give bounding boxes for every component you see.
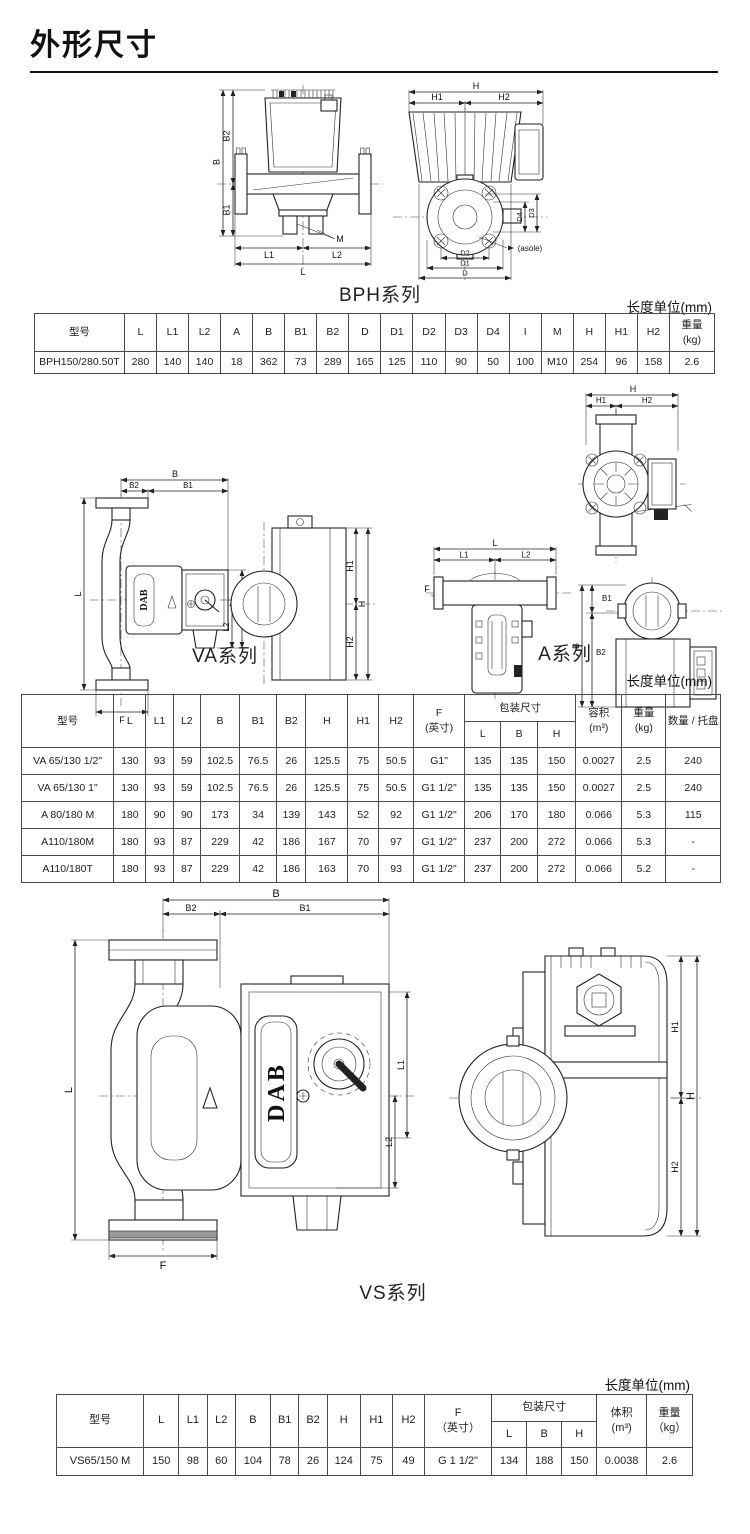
table-cell: 90	[173, 802, 200, 829]
table-cell: 0.0038	[597, 1448, 647, 1476]
table-cell: 93	[379, 856, 414, 883]
vs-drawing: B B2 B1 DAB	[45, 888, 705, 1273]
table-cell: 26	[277, 748, 306, 775]
table-cell: 237	[465, 856, 501, 883]
dim-label-H2: H2	[642, 396, 653, 405]
bph-table: 型号 L L1 L2 A B B1 B2 D D1 D2 D3 D4 I M H	[34, 313, 715, 374]
table-cell: 130	[114, 748, 146, 775]
table-row: BPH150/280.50T28014014018362732891651251…	[35, 352, 715, 374]
table-cell: 73	[285, 352, 317, 374]
table-cell: 34	[240, 802, 277, 829]
column-header: H1	[348, 695, 379, 748]
table-cell: 75	[348, 748, 379, 775]
table-cell: 124	[327, 1448, 360, 1476]
column-header: 重量 (kg)	[622, 695, 666, 748]
table-cell: 180	[537, 802, 575, 829]
table-cell: 229	[200, 829, 239, 856]
table-cell: 42	[240, 829, 277, 856]
table-row: VA 65/130 1"1309359102.576.526125.57550.…	[22, 775, 721, 802]
dim-label-H: H	[685, 1092, 697, 1100]
dim-label-B: B	[272, 888, 279, 900]
column-header: M	[541, 314, 573, 352]
table-cell: 163	[306, 856, 348, 883]
table-cell: 52	[348, 802, 379, 829]
dim-label-D1: D1	[460, 259, 470, 268]
dim-label-B1: B1	[299, 903, 310, 913]
table-cell: 49	[392, 1448, 424, 1476]
model-cell: VA 65/130 1"	[22, 775, 114, 802]
dim-label-H1: H1	[431, 92, 443, 102]
table-cell: G1 1/2"	[414, 829, 465, 856]
table-cell: 92	[379, 802, 414, 829]
table-cell: 140	[189, 352, 221, 374]
column-header: H	[537, 722, 575, 748]
dim-label-H1: H1	[670, 1021, 680, 1033]
column-header: 型号	[57, 1395, 144, 1448]
table-cell: 59	[173, 775, 200, 802]
table-cell: 98	[179, 1448, 207, 1476]
table-cell: 5.2	[622, 856, 666, 883]
dim-label-L: L	[300, 267, 305, 277]
a-caption: A系列	[440, 639, 690, 666]
table-cell: 139	[277, 802, 306, 829]
table-cell: 140	[156, 352, 188, 374]
table-row: A110/180T1809387229421861637093G1 1/2"23…	[22, 856, 721, 883]
dim-label-L: L	[63, 1087, 75, 1093]
table-cell: 26	[277, 775, 306, 802]
column-header: B2	[317, 314, 349, 352]
column-header: H	[573, 314, 605, 352]
table-row: A 80/180 M1809090173341391435292G1 1/2"2…	[22, 802, 721, 829]
dim-label-B: B	[172, 469, 178, 479]
table-cell: 102.5	[200, 775, 239, 802]
table-cell: 2.5	[622, 748, 666, 775]
table-cell: 135	[501, 748, 537, 775]
column-header: L1	[179, 1395, 207, 1448]
table-cell: 0.066	[576, 829, 622, 856]
column-header: B	[200, 695, 239, 748]
table-row: VS65/150 M150986010478261247549G 1 1/2"1…	[57, 1448, 693, 1476]
dim-label-D2: D2	[460, 249, 470, 258]
table-cell: 104	[235, 1448, 270, 1476]
dim-label-B: B	[212, 159, 222, 165]
column-header: 重量 (kg)	[669, 314, 714, 352]
dim-label-L: L	[73, 591, 83, 596]
table-cell: 75	[348, 775, 379, 802]
table-cell: 186	[277, 856, 306, 883]
table-cell: 115	[666, 802, 721, 829]
dim-label-F: F	[160, 1260, 167, 1272]
table-cell: -	[666, 829, 721, 856]
table-cell: 97	[379, 829, 414, 856]
table-cell: 93	[146, 856, 173, 883]
dim-label-D3: D3	[527, 208, 536, 218]
column-header: B1	[240, 695, 277, 748]
column-header: H	[327, 1395, 360, 1448]
table-cell: 50.5	[379, 775, 414, 802]
vs-side-view: H1 H2 H	[449, 948, 701, 1236]
dim-label-F: F	[424, 584, 430, 594]
va-caption: VA系列	[95, 641, 355, 668]
table-cell: 50.5	[379, 748, 414, 775]
table-cell: 18	[221, 352, 253, 374]
column-header: I	[509, 314, 541, 352]
table-cell: -	[666, 856, 721, 883]
dim-label-L1: L1	[396, 1060, 406, 1070]
table-cell: 180	[114, 856, 146, 883]
page-title: 外形尺寸	[30, 20, 158, 64]
table-cell: 158	[637, 352, 669, 374]
table-cell: 206	[465, 802, 501, 829]
dab-logo: DAB	[264, 1062, 290, 1122]
column-header: L2	[173, 695, 200, 748]
dim-label-B2: B2	[129, 481, 139, 490]
vs-caption: VS系列	[243, 1278, 543, 1305]
table-cell: 26	[299, 1448, 327, 1476]
table-cell: 0.066	[576, 802, 622, 829]
table-cell: 102.5	[200, 748, 239, 775]
table-cell: 50	[477, 352, 509, 374]
column-header: H	[562, 1422, 597, 1448]
table-cell: 0.0027	[576, 775, 622, 802]
table-cell: 150	[537, 775, 575, 802]
table-cell: 200	[501, 856, 537, 883]
model-cell: A110/180T	[22, 856, 114, 883]
table-cell: 0.066	[576, 856, 622, 883]
column-header: F (英寸)	[414, 695, 465, 748]
table-cell: 60	[207, 1448, 235, 1476]
column-header: L1	[156, 314, 188, 352]
table-cell: 70	[348, 856, 379, 883]
table-cell: 2.6	[669, 352, 714, 374]
column-header: H1	[360, 1395, 392, 1448]
table-cell: 134	[492, 1448, 527, 1476]
table-cell: 87	[173, 856, 200, 883]
table-cell: 150	[562, 1448, 597, 1476]
column-header: B2	[277, 695, 306, 748]
dim-label-H2: H2	[498, 92, 510, 102]
column-header: B	[527, 1422, 562, 1448]
table-cell: 110	[413, 352, 445, 374]
table-cell: 362	[253, 352, 285, 374]
column-header: H2	[392, 1395, 424, 1448]
column-header: H2	[379, 695, 414, 748]
dim-label-L2: L2	[222, 622, 231, 631]
column-header: B2	[299, 1395, 327, 1448]
table-cell: 272	[537, 829, 575, 856]
table-cell: M10	[541, 352, 573, 374]
column-header: D	[349, 314, 381, 352]
table-cell: 130	[114, 775, 146, 802]
table-cell: 170	[501, 802, 537, 829]
title-rule	[30, 71, 718, 73]
column-header: H	[306, 695, 348, 748]
model-cell: A 80/180 M	[22, 802, 114, 829]
va-front-view: B B2 B1 DAB	[73, 469, 250, 725]
table-cell: 143	[306, 802, 348, 829]
column-header: B1	[271, 1395, 299, 1448]
model-cell: A110/180M	[22, 829, 114, 856]
column-header: 数量 / 托盘	[666, 695, 721, 748]
table-cell: 2.6	[646, 1448, 692, 1476]
asole-label: (asole)	[518, 244, 543, 253]
table-cell: 87	[173, 829, 200, 856]
dim-label-H: H	[630, 384, 637, 394]
column-header: D3	[445, 314, 477, 352]
unit-note-vaa: 长度单位(mm)	[627, 670, 712, 690]
table-row: A110/180M1809387229421861677097G1 1/2"23…	[22, 829, 721, 856]
table-cell: 237	[465, 829, 501, 856]
column-header: B	[253, 314, 285, 352]
dim-label-L2: L2	[332, 250, 342, 260]
dim-label-M: M	[336, 234, 344, 244]
column-header: H2	[637, 314, 669, 352]
table-cell: G1"	[414, 748, 465, 775]
table-cell: 180	[114, 802, 146, 829]
table-cell: 93	[146, 829, 173, 856]
dim-label-H1: H1	[596, 396, 607, 405]
bph-front-view: B B2 B1 L1 L2 L M	[212, 85, 384, 277]
dim-label-B2: B2	[185, 903, 196, 913]
table-cell: 186	[277, 829, 306, 856]
column-header: L1	[146, 695, 173, 748]
column-header: 重量 （kg）	[646, 1395, 692, 1448]
table-cell: 5.3	[622, 802, 666, 829]
table-cell: 76.5	[240, 748, 277, 775]
va-a-table: 型号 L L1 L2 B B1 B2 H H1 H2 F (英寸) 包装尺寸 容…	[21, 694, 721, 883]
table-cell: 167	[306, 829, 348, 856]
table-cell: 229	[200, 856, 239, 883]
table-cell: 135	[501, 775, 537, 802]
dab-logo: DAB	[139, 589, 150, 610]
unit-note-vs: 长度单位(mm)	[605, 1374, 690, 1394]
model-cell: VS65/150 M	[57, 1448, 144, 1476]
vs-table: 型号 L L1 L2 B B1 B2 H H1 H2 F （英寸） 包装尺寸 体…	[56, 1394, 693, 1476]
column-header: B1	[285, 314, 317, 352]
catalog-page: 外形尺寸	[0, 0, 750, 1534]
table-cell: 93	[146, 748, 173, 775]
table-cell: 125.5	[306, 748, 348, 775]
table-cell: 272	[537, 856, 575, 883]
column-header: L	[114, 695, 146, 748]
table-cell: 200	[501, 829, 537, 856]
table-cell: 90	[146, 802, 173, 829]
column-header: 型号	[22, 695, 114, 748]
dim-label-B1: B1	[183, 481, 193, 490]
a-top-view: H H1 H2	[578, 384, 692, 563]
bph-drawing: B B2 B1 L1 L2 L M H H1 H2	[213, 82, 548, 282]
table-cell: 78	[271, 1448, 299, 1476]
column-header: D4	[477, 314, 509, 352]
dim-label-H: H	[357, 601, 367, 608]
column-header: F （英寸）	[425, 1395, 492, 1448]
column-header: D2	[413, 314, 445, 352]
table-cell: 188	[527, 1448, 562, 1476]
table-cell: G 1 1/2"	[425, 1448, 492, 1476]
table-cell: 240	[666, 748, 721, 775]
table-cell: 76.5	[240, 775, 277, 802]
table-cell: 165	[349, 352, 381, 374]
dim-label-H: H	[473, 81, 480, 91]
column-header-group: 包装尺寸	[492, 1395, 597, 1422]
table-cell: 96	[605, 352, 637, 374]
table-row: VA 65/130 1/2"1309359102.576.526125.5755…	[22, 748, 721, 775]
dim-label-L1: L1	[460, 551, 469, 560]
column-header: B	[501, 722, 537, 748]
table-cell: 90	[445, 352, 477, 374]
table-cell: 280	[124, 352, 156, 374]
column-header: 容积 (m³)	[576, 695, 622, 748]
table-cell: G1 1/2"	[414, 856, 465, 883]
table-cell: 5.3	[622, 829, 666, 856]
dim-label-L2: L2	[384, 1137, 394, 1147]
dim-label-B1: B1	[602, 594, 612, 603]
table-cell: 240	[666, 775, 721, 802]
column-header: H1	[605, 314, 637, 352]
column-header: 型号	[35, 314, 125, 352]
table-cell: 42	[240, 856, 277, 883]
bph-caption: BPH系列	[230, 280, 530, 307]
column-header: D1	[381, 314, 413, 352]
table-cell: 135	[465, 748, 501, 775]
table-cell: 125	[381, 352, 413, 374]
table-cell: 93	[146, 775, 173, 802]
table-cell: 100	[509, 352, 541, 374]
table-cell: 150	[537, 748, 575, 775]
dim-label-D: D	[462, 269, 468, 278]
table-cell: 173	[200, 802, 239, 829]
table-cell: 0.0027	[576, 748, 622, 775]
table-cell: 135	[465, 775, 501, 802]
dim-label-B1: B1	[222, 204, 232, 215]
va-drawing: B B2 B1 DAB	[60, 470, 400, 730]
table-cell: 2.5	[622, 775, 666, 802]
column-header: L	[144, 1395, 179, 1448]
dim-label-L: L	[492, 538, 497, 548]
table-cell: 125.5	[306, 775, 348, 802]
column-header: L	[124, 314, 156, 352]
table-cell: G1 1/2"	[414, 802, 465, 829]
a-front-view: L L1 L2 F	[424, 538, 572, 701]
column-header: L2	[207, 1395, 235, 1448]
table-cell: 254	[573, 352, 605, 374]
table-cell: 180	[114, 829, 146, 856]
model-cell: VA 65/130 1/2"	[22, 748, 114, 775]
table-cell: 289	[317, 352, 349, 374]
column-header: L	[465, 722, 501, 748]
column-header: L	[492, 1422, 527, 1448]
table-cell: 75	[360, 1448, 392, 1476]
dim-label-B2: B2	[222, 130, 232, 141]
column-header: B	[235, 1395, 270, 1448]
dim-label-H1: H1	[345, 560, 355, 572]
table-cell: G1 1/2"	[414, 775, 465, 802]
model-cell: BPH150/280.50T	[35, 352, 125, 374]
bph-side-view: H H1 H2 D4	[393, 81, 547, 280]
column-header: L2	[189, 314, 221, 352]
table-cell: 150	[144, 1448, 179, 1476]
dim-label-L2: L2	[522, 551, 531, 560]
table-cell: 70	[348, 829, 379, 856]
vs-front-view: B B2 B1 DAB	[63, 888, 417, 1272]
table-cell: 59	[173, 748, 200, 775]
dim-label-H2: H2	[670, 1161, 680, 1173]
column-header: A	[221, 314, 253, 352]
column-header: 体积 (m³)	[597, 1395, 647, 1448]
column-header-group: 包装尺寸	[465, 695, 576, 722]
dim-label-L1: L1	[264, 250, 274, 260]
dim-label-D4: D4	[515, 212, 524, 222]
